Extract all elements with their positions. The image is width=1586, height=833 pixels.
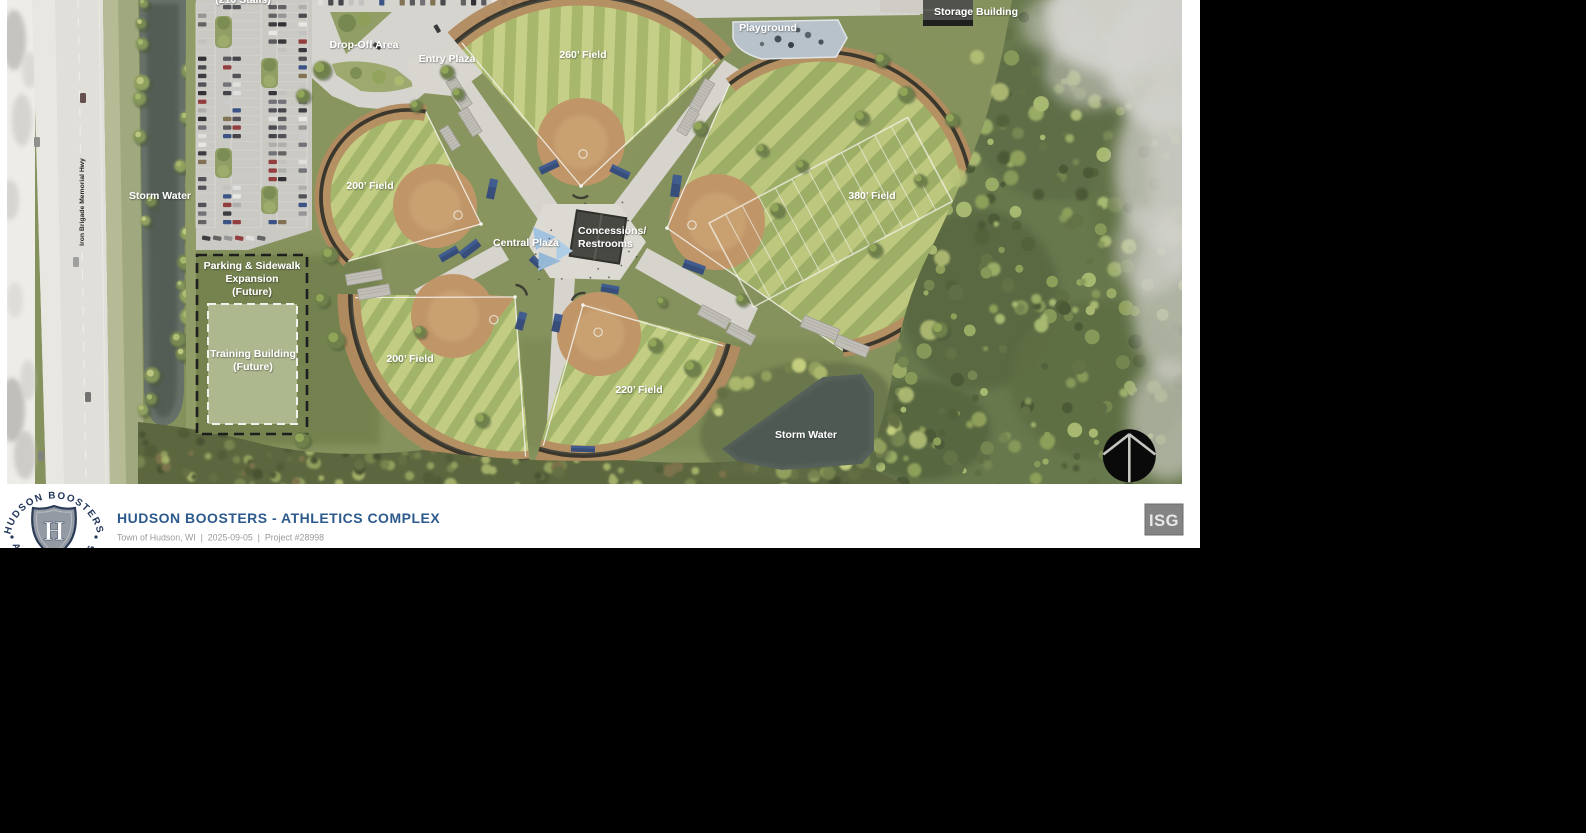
svg-text:Training Building: Training Building bbox=[210, 348, 296, 360]
svg-text:HUDSON BOOSTERS - ATHLETICS CO: HUDSON BOOSTERS - ATHLETICS COMPLEX bbox=[117, 510, 440, 526]
svg-text:Concessions/: Concessions/ bbox=[578, 225, 646, 237]
svg-text:260’ Field: 260’ Field bbox=[559, 49, 606, 61]
svg-text:Expansion: Expansion bbox=[225, 273, 278, 285]
svg-text:Storm Water: Storm Water bbox=[775, 429, 837, 441]
svg-text:Drop-Off Area: Drop-Off Area bbox=[329, 39, 398, 51]
svg-text:Town of Hudson, WI | 2025-09: Town of Hudson, WI | 2025-09-05 | Projec… bbox=[117, 533, 324, 543]
svg-text:(Future): (Future) bbox=[232, 286, 272, 298]
svg-text:200’ Field: 200’ Field bbox=[386, 353, 433, 365]
svg-text:200’ Field: 200’ Field bbox=[346, 180, 393, 192]
svg-text:Central Plaza: Central Plaza bbox=[493, 237, 559, 249]
svg-text:Entry Plaza: Entry Plaza bbox=[419, 53, 476, 65]
svg-text:H: H bbox=[43, 516, 64, 546]
svg-text:220’ Field: 220’ Field bbox=[615, 384, 662, 396]
svg-text:Storm Water: Storm Water bbox=[129, 190, 191, 202]
svg-text:Storage Building: Storage Building bbox=[934, 6, 1018, 18]
svg-text:Playground: Playground bbox=[739, 22, 797, 34]
svg-text:Restrooms: Restrooms bbox=[578, 238, 633, 250]
svg-text:Iron Brigade Memorial Hwy: Iron Brigade Memorial Hwy bbox=[79, 158, 86, 246]
svg-text:(Future): (Future) bbox=[233, 361, 273, 373]
svg-text:(210 Stalls): (210 Stalls) bbox=[215, 0, 270, 6]
svg-text:ISG: ISG bbox=[1149, 512, 1179, 530]
svg-text:Parking & Sidewalk: Parking & Sidewalk bbox=[204, 260, 301, 272]
svg-text:380’ Field: 380’ Field bbox=[848, 190, 895, 202]
